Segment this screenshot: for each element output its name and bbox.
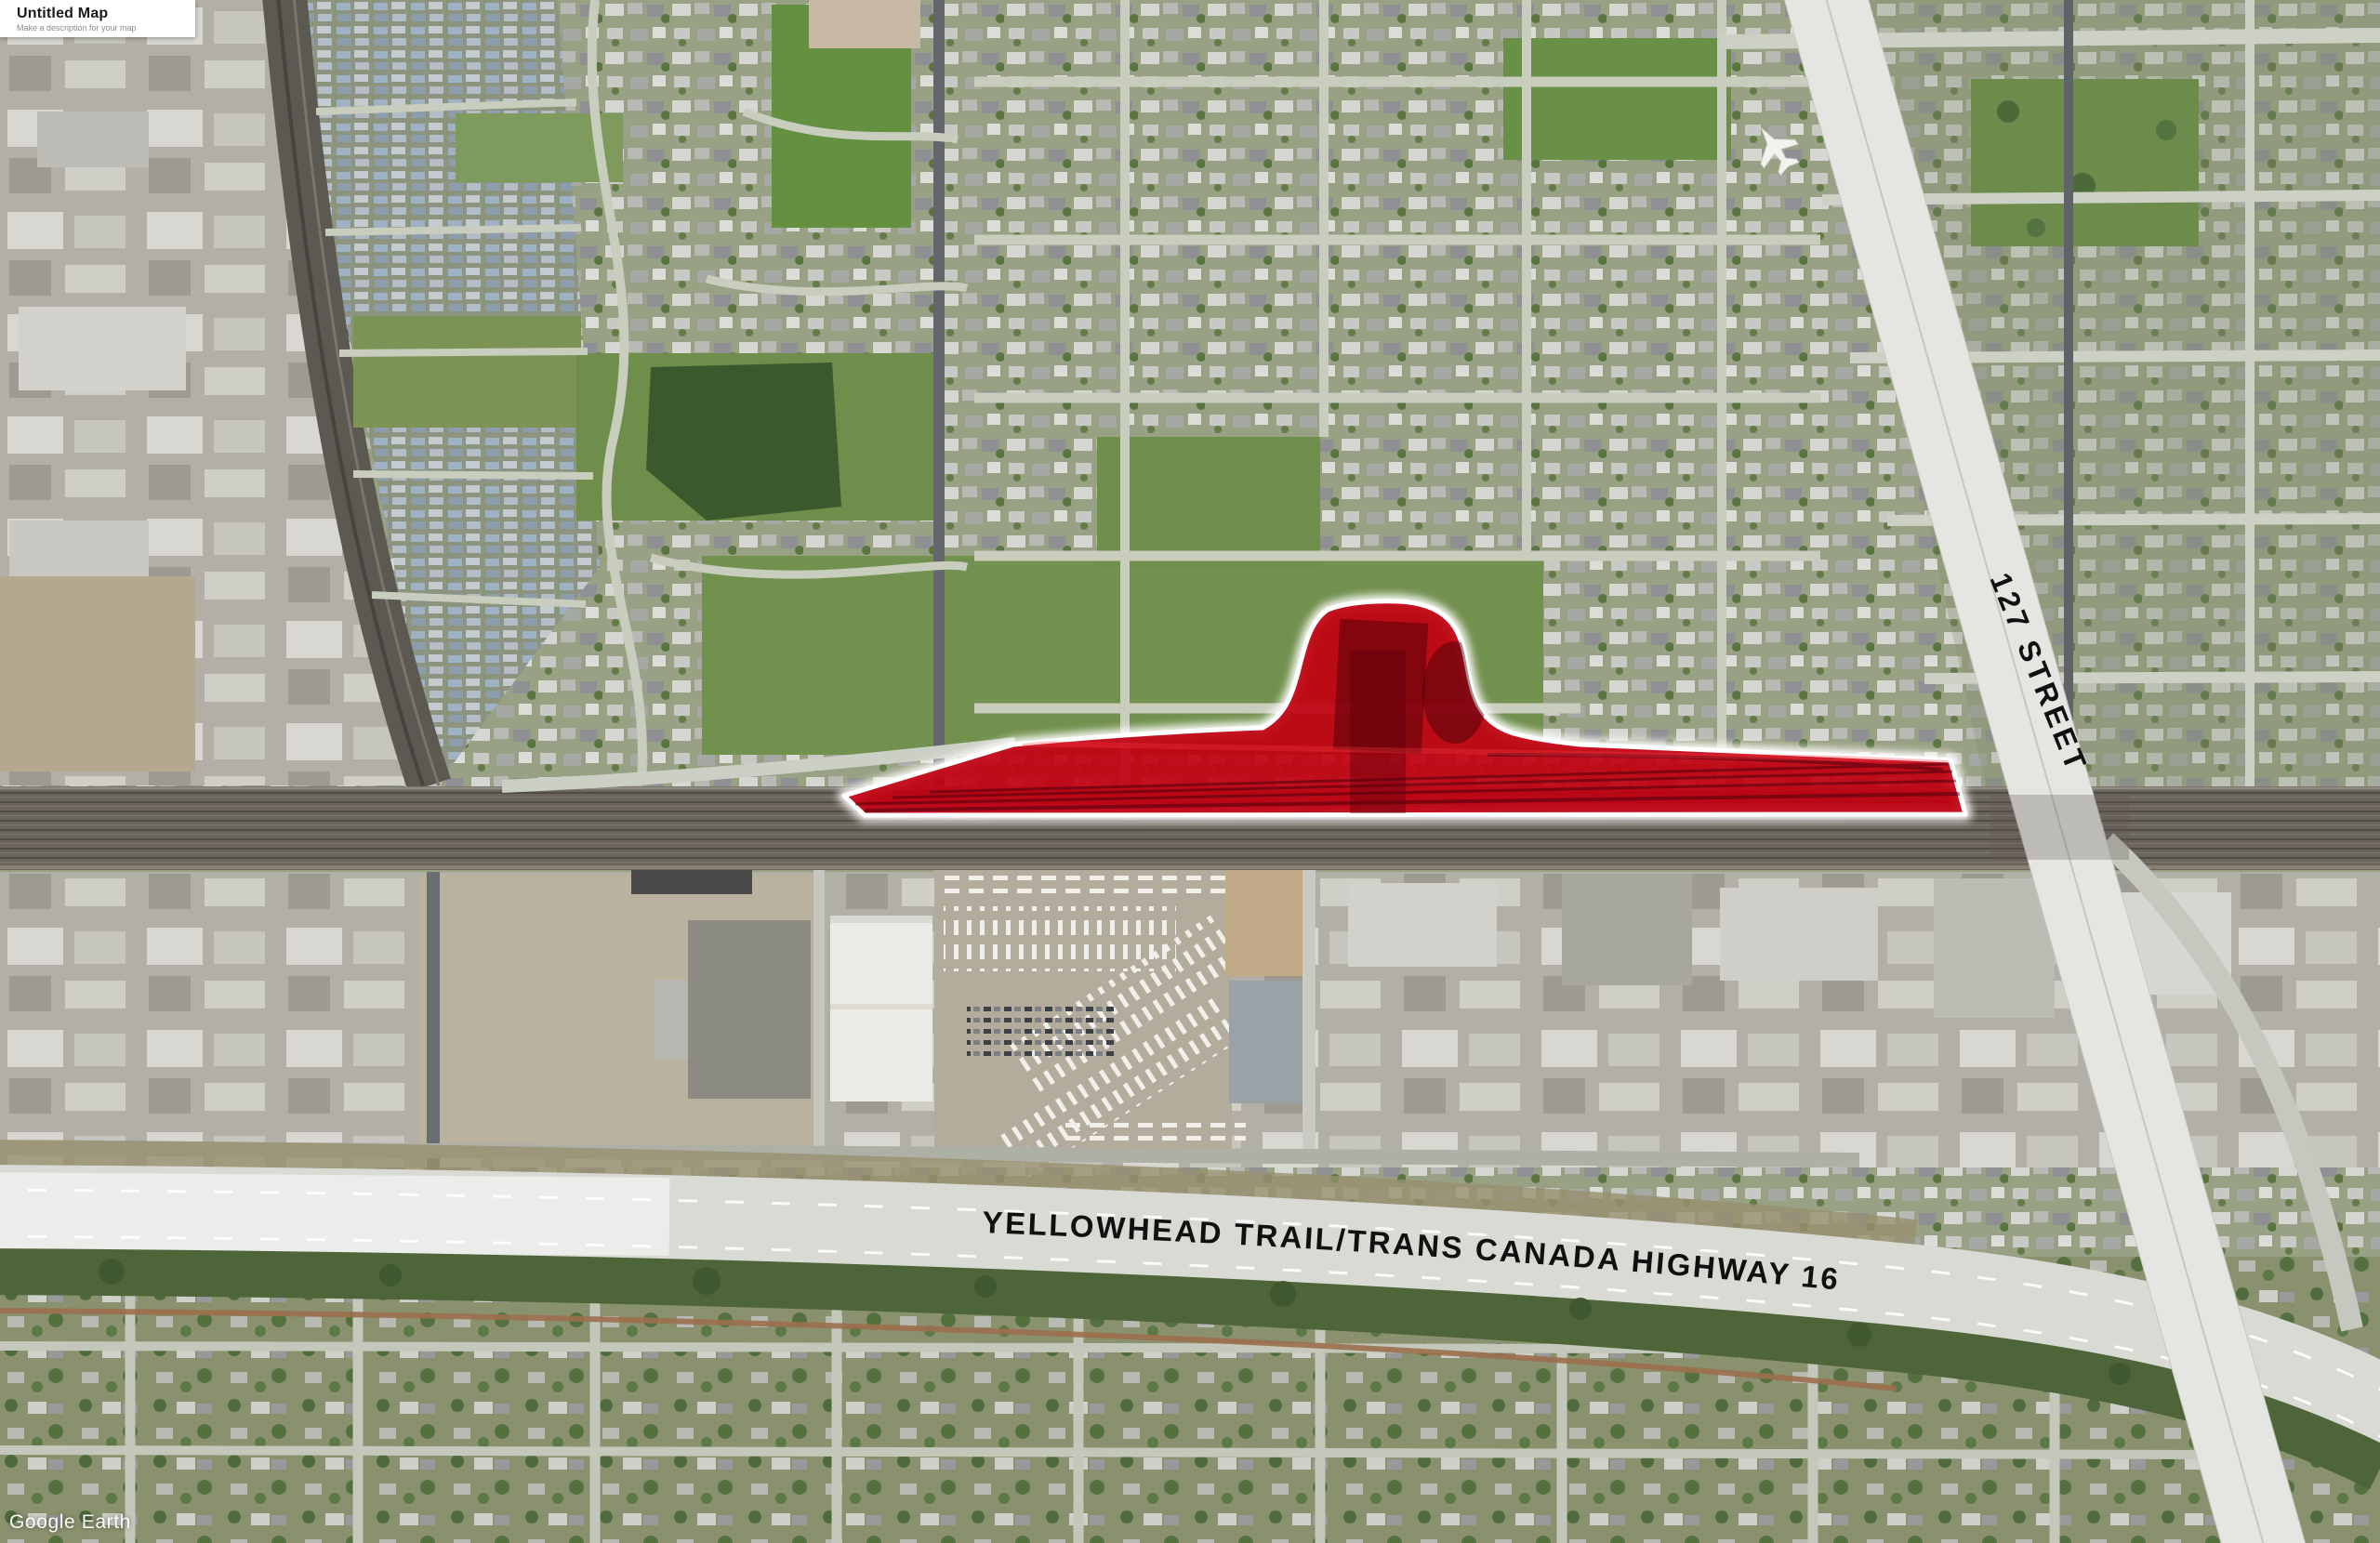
map-title-panel[interactable]: Untitled Map Make a description for your…: [0, 0, 195, 37]
map-title[interactable]: Untitled Map: [17, 6, 195, 22]
map-description[interactable]: Make a description for your map: [17, 23, 195, 33]
google-earth-watermark: Google Earth: [9, 1511, 131, 1534]
satellite-map[interactable]: 127 STREET YELLOWHEAD TRAIL/TRANS CANADA…: [0, 0, 2380, 1543]
map-canvas[interactable]: 127 STREET YELLOWHEAD TRAIL/TRANS CANADA…: [0, 0, 2380, 1543]
